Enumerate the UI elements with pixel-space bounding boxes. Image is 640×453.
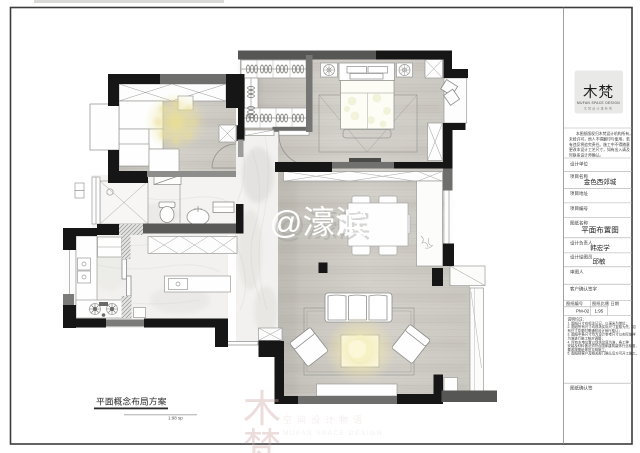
svg-text:邱敏: 邱敏: [593, 257, 607, 266]
svg-text:项目地址: 项目地址: [570, 190, 588, 197]
svg-text:4. 所有水电位置以现场交底为准，各工种: 4. 所有水电位置以现场交底为准，各工种: [568, 339, 630, 344]
svg-text:木梵: 木梵: [583, 84, 614, 101]
svg-text:设计单位: 设计单位: [570, 161, 588, 168]
svg-text:项目编号: 项目编号: [570, 205, 588, 212]
svg-text:未经许可，他人不得翻印与使用，若: 未经许可，他人不得翻印与使用，若: [569, 136, 630, 141]
svg-text:梵: 梵: [243, 427, 281, 453]
svg-text:韩宏学: 韩宏学: [590, 243, 610, 252]
svg-text:有违反将追究责任。施工中不得随意: 有违反将追究责任。施工中不得随意: [569, 142, 630, 147]
svg-text:本图纸版权归木梵设计机构所有，: 本图纸版权归木梵设计机构所有，: [576, 131, 633, 136]
svg-text:图纸编号: 图纸编号: [566, 300, 583, 307]
svg-text:木: 木: [243, 389, 281, 431]
svg-text:平面布置图: 平面布置图: [581, 225, 619, 235]
svg-text:审图人: 审图人: [570, 269, 584, 276]
svg-text:图纸确认签: 图纸确认签: [570, 385, 593, 392]
svg-text:图纸比例: 图纸比例: [592, 300, 609, 307]
svg-text:时联系设计师确认。: 时联系设计师确认。: [569, 153, 603, 158]
svg-text:金色西郊城: 金色西郊城: [584, 177, 617, 186]
svg-text:PM-02: PM-02: [576, 309, 590, 314]
svg-text:MUFAN SPACE DESIGN: MUFAN SPACE DESIGN: [577, 101, 620, 105]
svg-text:1:98 sp: 1:98 sp: [168, 416, 183, 421]
svg-text:2. 图纸所有尺寸均现场实际尺寸复核为先，如: 2. 图纸所有尺寸均现场实际尺寸复核为先，如: [568, 324, 637, 329]
svg-text:@濠滨: @濠滨: [270, 205, 368, 241]
svg-text:木梵设计事务所: 木梵设计事务所: [584, 106, 613, 111]
svg-text:5. 图纸经客户及相关部门确认后方可开工施工。: 5. 图纸经客户及相关部门确认后方可开工施工。: [568, 351, 640, 356]
svg-text:MUFAN SPACE DESIGN: MUFAN SPACE DESIGN: [283, 430, 383, 437]
svg-text:有尺寸变更时需通知设计师行核认；: 有尺寸变更时需通知设计师行核认；: [568, 328, 622, 333]
svg-text:空间设计物语: 空间设计物语: [283, 414, 367, 425]
svg-text:为准进行施工核对调整；: 为准进行施工核对调整；: [568, 336, 605, 341]
svg-text:要求按图纸规范文明施工；: 要求按图纸规范文明施工；: [568, 347, 609, 352]
svg-text:安装及材料做法须符合国家建筑装饰行业标准，: 安装及材料做法须符合国家建筑装饰行业标准，: [568, 343, 639, 348]
svg-text:说明均注：: 说明均注：: [568, 317, 587, 322]
svg-text:3. 图纸中各尺寸均为设计参考尺寸以实际放样: 3. 图纸中各尺寸均为设计参考尺寸以实际放样: [568, 332, 637, 337]
svg-text:1:95: 1:95: [595, 309, 604, 314]
svg-text:设计绘图员: 设计绘图员: [570, 254, 593, 261]
svg-text:1. 图纸尺寸在标注记记，以毫米为单位；: 1. 图纸尺寸在标注记记，以毫米为单位；: [568, 320, 629, 325]
svg-text:平面概念布局方案: 平面概念布局方案: [96, 396, 167, 407]
svg-text:客户确认签字: 客户确认签字: [570, 286, 597, 293]
svg-text:更改本设计工艺尺寸，如有出入请及: 更改本设计工艺尺寸，如有出入请及: [569, 147, 630, 152]
